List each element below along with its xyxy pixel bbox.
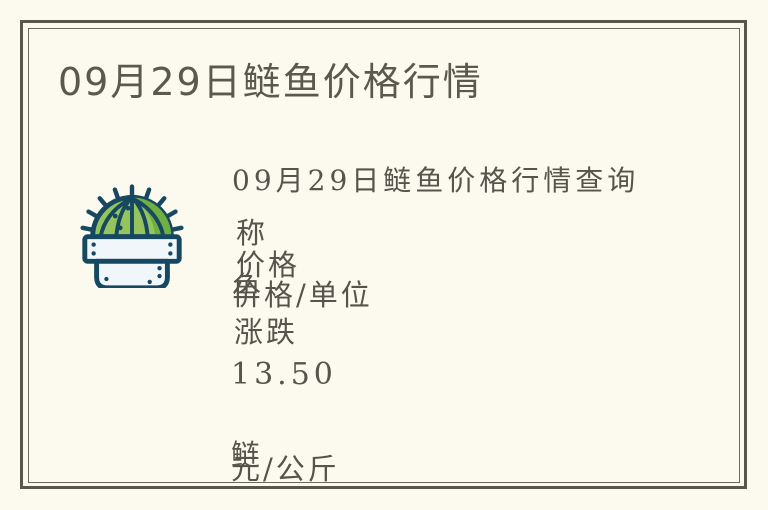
table-header-name-fragment: 称 — [236, 219, 268, 248]
page-title: 09月29日鲢鱼价格行情 — [58, 62, 483, 104]
table-value-price: 13.50 — [231, 360, 337, 390]
pot-dot — [157, 274, 161, 278]
table-value-unit: 元/公斤 — [231, 455, 340, 484]
cactus-dot — [126, 206, 131, 211]
cactus-icon — [73, 150, 191, 288]
pot-body — [97, 261, 168, 288]
pot-dot — [168, 251, 172, 255]
cactus-dot — [118, 225, 123, 230]
pot-dot — [157, 266, 161, 270]
cactus-dot — [113, 214, 118, 219]
pot-dot — [104, 277, 108, 281]
pot-dot — [148, 280, 152, 284]
pot-dot — [168, 242, 172, 246]
article-heading: 09月29日鲢鱼价格行情查询 — [232, 167, 639, 195]
table-header-change: 涨跌 — [234, 318, 298, 347]
pot-dot — [91, 251, 95, 255]
table-header-price-unit: 价格/单位 — [232, 281, 373, 310]
pot-dot — [91, 242, 95, 246]
pot-rim — [85, 237, 179, 262]
